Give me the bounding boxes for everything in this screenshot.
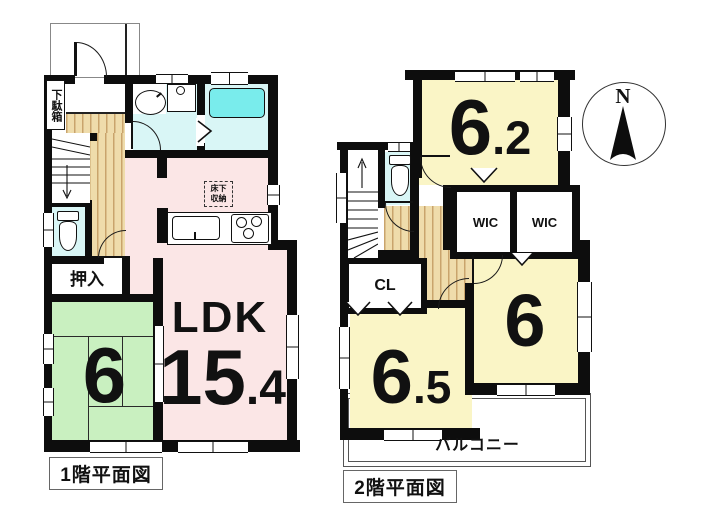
hallway-wood-floor-1f: [66, 114, 125, 134]
wall: [44, 440, 300, 452]
window: [90, 441, 162, 453]
window: [497, 384, 555, 396]
tatami-size-label: 6: [62, 332, 147, 417]
kitchen-sink: [172, 216, 220, 240]
bedroom-ne-size-whole: 6: [449, 88, 492, 166]
balcony-text: バルコニー: [435, 437, 520, 454]
wall: [85, 200, 92, 258]
wall: [197, 83, 205, 115]
ldk-size-label: 15 .4: [150, 338, 295, 410]
wall: [157, 150, 167, 178]
stove-burner: [251, 216, 262, 227]
tatami-size-text: 6: [83, 336, 126, 414]
toilet-bowl-1f: [59, 221, 77, 251]
floor1-title-box: 1階平面図: [49, 457, 163, 490]
closet-door-mark: [510, 252, 534, 267]
window: [336, 173, 347, 223]
porch-divider-line: [125, 24, 127, 75]
wall: [410, 142, 419, 258]
toilet-tank-1f: [57, 211, 79, 221]
floor1-title: 1階平面図: [60, 460, 152, 487]
wall: [125, 83, 133, 123]
underfloor-storage-label: 収納: [211, 194, 227, 204]
window: [43, 213, 54, 247]
bedroom-sw-size-whole: 6: [371, 340, 413, 416]
ldk-size-whole: 15: [159, 338, 246, 416]
oshiire-closet: 押入: [52, 264, 122, 294]
wall: [44, 256, 104, 264]
toilet-bowl-2f: [391, 165, 409, 196]
floor2-title-box: 2階平面図: [343, 470, 457, 503]
closet-door-mark: [387, 301, 413, 317]
toilet-tank-2f: [389, 155, 411, 165]
genkan-step-line: [66, 112, 125, 114]
kitchen-faucet: [194, 232, 196, 240]
wic2-label: WIC: [532, 215, 557, 230]
window: [520, 71, 554, 82]
bedroom-ne-size-fraction: .2: [492, 114, 531, 161]
wic1-label: WIC: [473, 215, 498, 230]
window: [211, 72, 248, 85]
bathtub: [209, 88, 265, 118]
underfloor-storage-label: 床下: [211, 184, 227, 194]
stairs-1f: [52, 133, 90, 203]
shoe-cabinet-label: 下駄箱: [50, 89, 61, 122]
bedroom-ne-size-label: 6 .2: [430, 88, 550, 160]
ldk-size-fraction: .4: [246, 365, 286, 413]
window: [455, 71, 515, 82]
window: [339, 327, 350, 389]
washing-machine-drain: [176, 86, 185, 95]
compass-needle-icon: [608, 104, 638, 162]
stove-burner: [236, 217, 247, 228]
stove-burner: [243, 228, 254, 239]
stairs-2f: [348, 152, 378, 258]
floor2-title: 2階平面図: [354, 473, 446, 500]
oshiire-label: 押入: [70, 271, 104, 288]
window: [577, 282, 592, 352]
bedroom-se-size-text: 6: [504, 284, 545, 358]
bedroom-sw-size-label: 6 .5: [352, 340, 470, 410]
window: [43, 388, 54, 416]
wic-closet-2: WIC: [510, 185, 579, 259]
shoe-cabinet-label-box: 下駄箱: [46, 80, 65, 130]
underfloor-storage-box: 床下 収納: [204, 181, 233, 207]
bedroom-sw-size-fraction: .5: [413, 364, 451, 410]
window: [178, 441, 248, 453]
bath-folding-door-icon: [196, 118, 214, 146]
closet-door-mark: [345, 301, 371, 317]
wall: [268, 240, 297, 250]
window: [557, 117, 572, 151]
window: [156, 74, 188, 84]
balcony-label: バルコニー: [420, 438, 535, 454]
window: [43, 334, 54, 364]
window: [267, 185, 280, 205]
bedroom-se-size-label: 6: [485, 285, 565, 357]
cl-label: CL: [374, 277, 395, 295]
wall: [378, 150, 385, 208]
window: [388, 142, 410, 152]
floor-plan-page: 下駄箱 床下 収納 押入 6: [0, 0, 705, 525]
